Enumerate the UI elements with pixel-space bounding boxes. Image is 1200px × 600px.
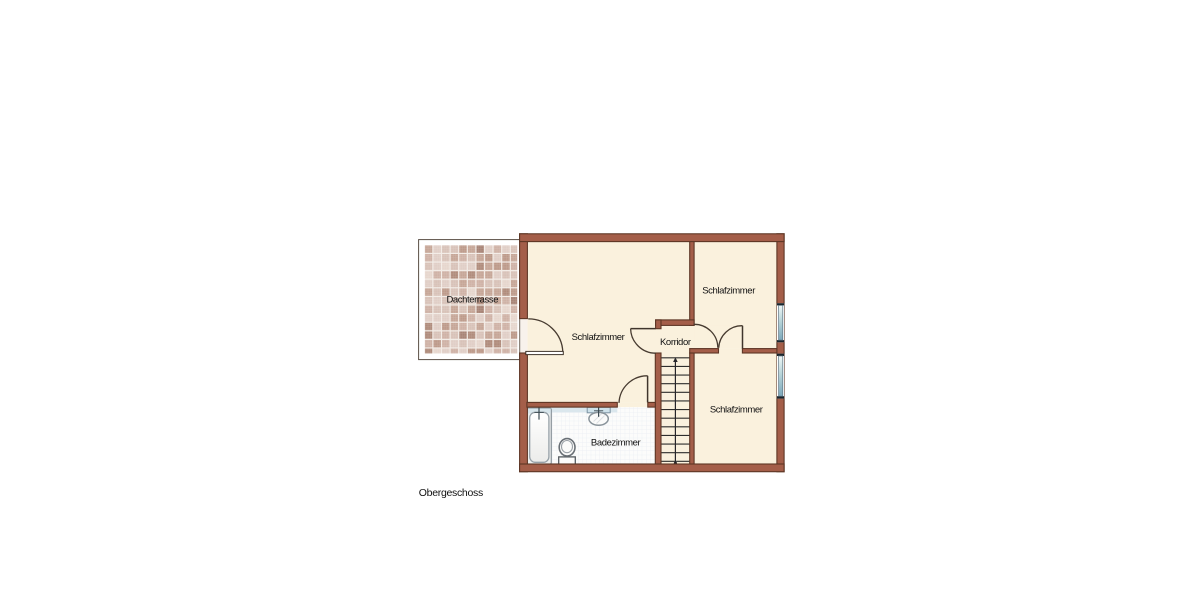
svg-text:Badezimmer: Badezimmer: [591, 438, 641, 449]
svg-text:Korridor: Korridor: [660, 337, 691, 348]
svg-text:Obergeschoss: Obergeschoss: [419, 487, 483, 499]
svg-text:Schlafzimmer: Schlafzimmer: [710, 404, 763, 415]
svg-text:Schlafzimmer: Schlafzimmer: [572, 332, 625, 343]
svg-text:Schlafzimmer: Schlafzimmer: [702, 286, 755, 297]
svg-text:Dachterrasse: Dachterrasse: [446, 294, 498, 305]
